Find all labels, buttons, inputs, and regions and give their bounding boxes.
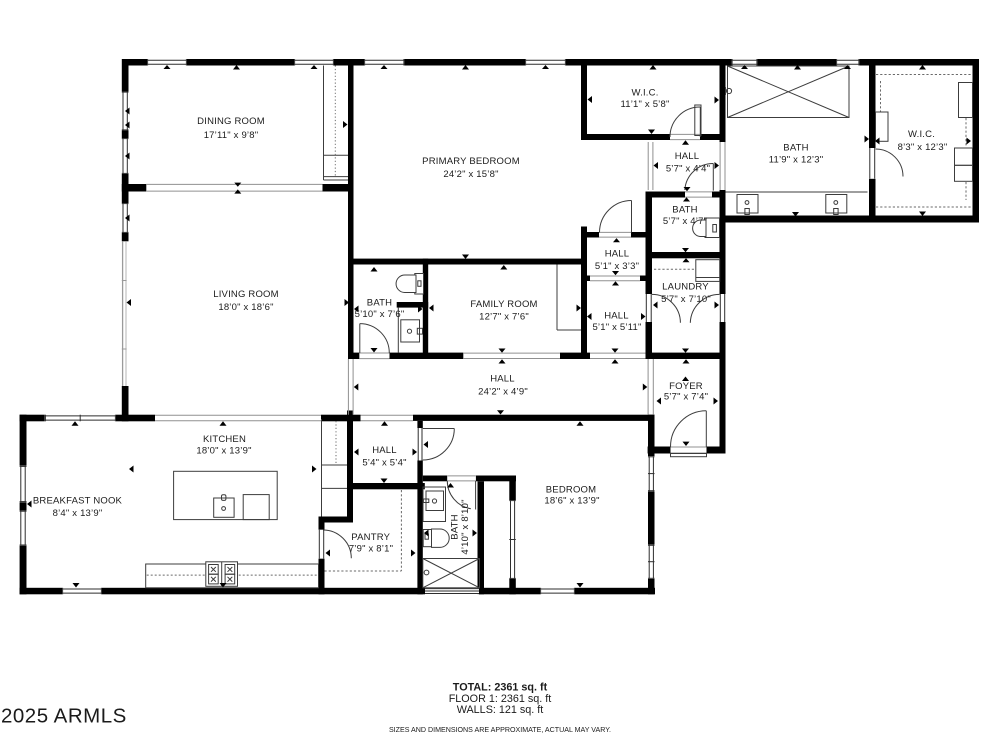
svg-text:BREAKFAST NOOK: BREAKFAST NOOK [33, 496, 123, 507]
svg-text:LIVING ROOM: LIVING ROOM [213, 289, 279, 300]
svg-text:SIZES AND DIMENSIONS ARE APPRO: SIZES AND DIMENSIONS ARE APPROXIMATE, AC… [389, 726, 611, 734]
svg-text:7’9" x 8’1": 7’9" x 8’1" [349, 544, 393, 555]
svg-text:KITCHEN: KITCHEN [203, 434, 246, 445]
svg-text:11’1" x 5’8": 11’1" x 5’8" [620, 99, 669, 110]
svg-text:BEDROOM: BEDROOM [546, 484, 597, 495]
svg-text:17’11" x 9’8": 17’11" x 9’8" [204, 130, 259, 141]
svg-text:FAMILY ROOM: FAMILY ROOM [470, 299, 537, 310]
svg-text:DINING ROOM: DINING ROOM [197, 116, 265, 127]
svg-text:8’4" x 13’9": 8’4" x 13’9" [53, 508, 103, 519]
svg-text:11’9" x 12’3": 11’9" x 12’3" [769, 155, 824, 166]
svg-text:HALL: HALL [675, 151, 700, 162]
svg-text:24’2" x 4’9": 24’2" x 4’9" [478, 387, 528, 398]
svg-text:FOYER: FOYER [669, 381, 703, 392]
svg-text:W.I.C.: W.I.C. [631, 88, 658, 99]
svg-text:WALLS: 121 sq. ft: WALLS: 121 sq. ft [457, 704, 544, 716]
svg-text:5’1" x 3’3": 5’1" x 3’3" [595, 261, 639, 272]
svg-text:4’10" x 8’10": 4’10" x 8’10" [460, 499, 471, 554]
svg-text:5’7" x 4’4": 5’7" x 4’4" [666, 164, 710, 175]
svg-text:HALL: HALL [372, 445, 397, 456]
svg-text:5’7" x 7’10": 5’7" x 7’10" [661, 294, 711, 305]
svg-text:18’0" x 13’9": 18’0" x 13’9" [196, 446, 251, 457]
svg-text:12’7" x 7’6": 12’7" x 7’6" [479, 312, 529, 323]
svg-text:BATH: BATH [450, 514, 461, 539]
svg-text:24’2" x 15’8": 24’2" x 15’8" [443, 169, 498, 180]
svg-text:5’7" x 4’7": 5’7" x 4’7" [663, 216, 707, 227]
svg-text:HALL: HALL [490, 374, 515, 385]
svg-text:PANTRY: PANTRY [351, 532, 390, 543]
svg-text:LAUNDRY: LAUNDRY [662, 282, 709, 293]
svg-text:W.I.C.: W.I.C. [908, 129, 935, 140]
svg-text:18’6" x 13’9": 18’6" x 13’9" [544, 496, 599, 507]
svg-text:5’1" x 5’11": 5’1" x 5’11" [592, 322, 641, 333]
svg-text:18’0" x 18’6": 18’0" x 18’6" [218, 302, 273, 313]
svg-text:BATH: BATH [783, 142, 808, 153]
svg-text:5’10" x 7’6": 5’10" x 7’6" [355, 309, 405, 320]
svg-text:BATH: BATH [672, 204, 697, 215]
svg-text:5’7" x 7’4": 5’7" x 7’4" [664, 392, 708, 403]
svg-text:5’4" x 5’4": 5’4" x 5’4" [362, 458, 406, 469]
svg-text:HALL: HALL [604, 310, 629, 321]
svg-text:BATH: BATH [367, 298, 392, 309]
svg-text:8’3" x 12’3": 8’3" x 12’3" [898, 142, 948, 153]
svg-text:TOTAL: 2361 sq. ft: TOTAL: 2361 sq. ft [453, 682, 548, 694]
svg-text:PRIMARY BEDROOM: PRIMARY BEDROOM [422, 156, 520, 167]
svg-text:2025 ARMLS: 2025 ARMLS [1, 705, 127, 728]
svg-text:HALL: HALL [605, 248, 630, 259]
